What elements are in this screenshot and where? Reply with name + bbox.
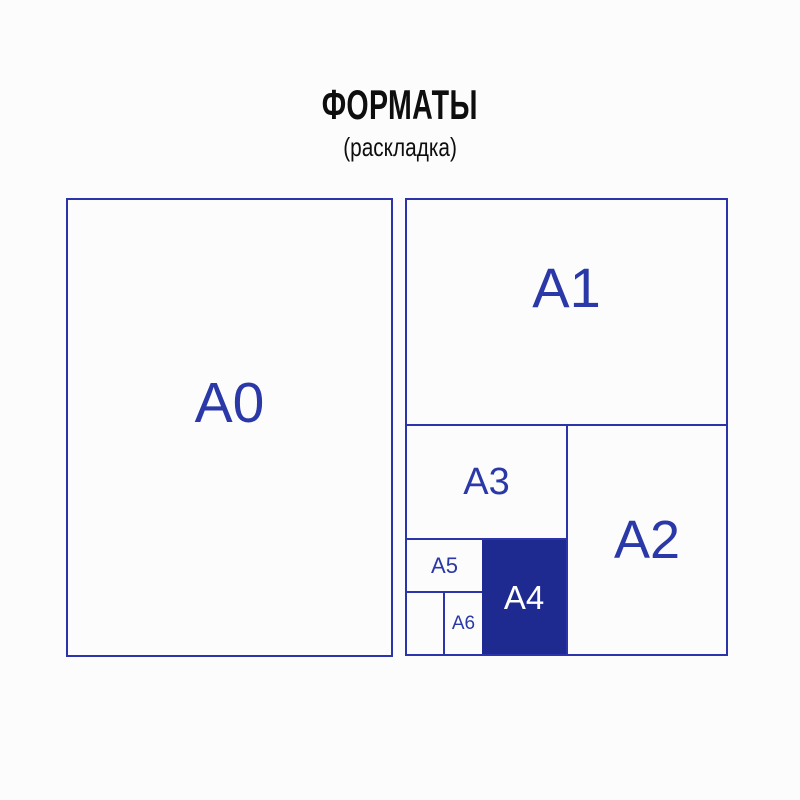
- format-cell-a6: A6: [443, 593, 482, 654]
- format-cell-a2: A2: [568, 426, 726, 654]
- composite-lower-region: A3 A5 A6: [407, 426, 726, 654]
- paper-formats-diagram: ФОРМАТЫ (раскладка) A0 A1 A3 A5: [0, 0, 800, 800]
- format-label-a5: A5: [431, 555, 458, 577]
- format-label-a6: A6: [452, 614, 475, 633]
- empty-cell: [407, 593, 443, 654]
- format-label-a4: A4: [504, 581, 544, 614]
- composite-bottom-strip: A5 A6 A4: [407, 540, 566, 654]
- format-cell-a1: A1: [407, 200, 726, 426]
- diagram-heading: ФОРМАТЫ (раскладка): [0, 84, 800, 160]
- format-cell-a5: A5: [407, 540, 482, 593]
- composite-a6-row: A6: [407, 593, 482, 654]
- format-label-a0: A0: [195, 375, 265, 432]
- format-cell-a0: A0: [66, 198, 393, 657]
- composite-small-column: A5 A6: [407, 540, 482, 654]
- diagram-subtitle: (раскладка): [0, 134, 800, 160]
- format-label-a2: A2: [614, 513, 680, 567]
- format-label-a1: A1: [532, 260, 601, 316]
- composite-left-column: A3 A5 A6: [407, 426, 568, 654]
- diagram-title: ФОРМАТЫ: [0, 84, 800, 126]
- format-cell-a4: A4: [482, 540, 566, 654]
- formats-composite-box: A1 A3 A5 A6: [405, 198, 728, 656]
- format-label-a3: A3: [463, 463, 509, 501]
- format-cell-a3: A3: [407, 426, 566, 540]
